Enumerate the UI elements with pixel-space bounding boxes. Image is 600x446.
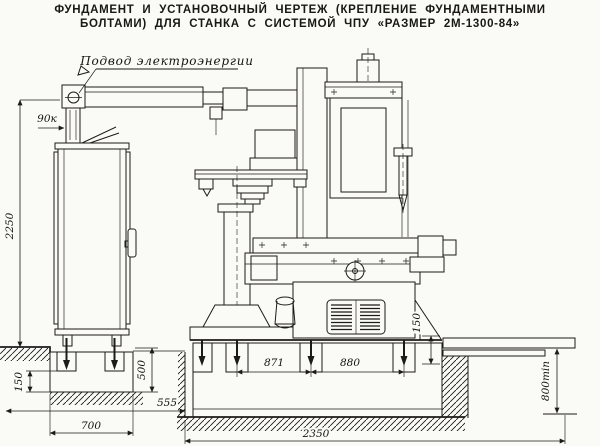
door-handle bbox=[128, 229, 136, 257]
cable-chute bbox=[82, 127, 119, 143]
dim-bolt-span-right: 880 bbox=[311, 357, 404, 372]
title-line-2: БОЛТАМИ) ДЛЯ СТАНКА С СИСТЕМОЙ ЧПУ «РАЗМ… bbox=[0, 17, 600, 31]
dim-power-offset: 90к bbox=[37, 113, 64, 128]
machine-column bbox=[297, 68, 327, 253]
head-top-plate bbox=[325, 82, 402, 98]
svg-text:2350: 2350 bbox=[302, 428, 330, 440]
svg-text:150: 150 bbox=[13, 372, 25, 392]
slab-ledge bbox=[443, 350, 545, 356]
table-plate bbox=[195, 170, 307, 179]
svg-text:700: 700 bbox=[81, 420, 101, 432]
anchor-bolt-cab-1 bbox=[63, 338, 70, 370]
arm-beam bbox=[85, 87, 203, 107]
arm-block bbox=[223, 88, 247, 110]
trench-wall-hatch bbox=[442, 356, 468, 418]
spindle-head bbox=[325, 48, 412, 237]
base-pedestal bbox=[203, 305, 270, 327]
table-drive-box bbox=[255, 130, 295, 158]
dim-trench-depth: 800min bbox=[540, 349, 557, 413]
power-supply-label: Подвод электроэнергии bbox=[79, 54, 254, 68]
svg-text:90к: 90к bbox=[37, 113, 57, 125]
table-drive-base bbox=[250, 158, 297, 170]
table-clamp-left bbox=[199, 179, 213, 189]
ground-and-foundation bbox=[0, 338, 577, 431]
cross-slide bbox=[245, 236, 456, 284]
knee bbox=[245, 253, 420, 284]
arm-post bbox=[66, 108, 80, 143]
limit-switch bbox=[210, 107, 222, 119]
ground-hatch-under-left-block bbox=[50, 392, 143, 405]
svg-text:500: 500 bbox=[136, 360, 148, 380]
machine bbox=[54, 48, 456, 346]
foundation-block-left bbox=[50, 352, 133, 392]
pit-wall-hatch-left bbox=[178, 352, 185, 418]
electrical-cabinet bbox=[54, 127, 136, 346]
dim-left-block-depth: 500 bbox=[133, 348, 158, 392]
lubricator bbox=[275, 297, 295, 328]
base-body bbox=[293, 282, 415, 338]
svg-text:150: 150 bbox=[411, 313, 423, 333]
svg-text:800min: 800min bbox=[540, 361, 552, 401]
bolt-centerlines bbox=[237, 362, 404, 377]
floor-slab-right bbox=[443, 338, 575, 348]
dim-overall-height: 2250 bbox=[4, 100, 60, 347]
machine-drawing-canvas: Подвод электроэнергии 2250 90к 150 bbox=[0, 0, 600, 446]
svg-text:871: 871 bbox=[264, 357, 284, 369]
arm-end-block bbox=[62, 85, 85, 108]
arm-extension bbox=[247, 90, 297, 106]
svg-text:880: 880 bbox=[340, 357, 360, 369]
foundation-installation-drawing: ФУНДАМЕНТ И УСТАНОВОЧНЫЙ ЧЕРТЕЖ (КРЕПЛЕН… bbox=[0, 0, 600, 446]
arm-coupling bbox=[203, 92, 223, 104]
table-clamp-right bbox=[294, 179, 306, 187]
cross-rail bbox=[253, 238, 420, 253]
svg-text:2250: 2250 bbox=[4, 212, 16, 240]
cabinet-foot-2 bbox=[112, 335, 121, 346]
pedestal-cap bbox=[218, 204, 253, 212]
ground-hatch-left bbox=[0, 348, 50, 361]
title-block: ФУНДАМЕНТ И УСТАНОВОЧНЫЙ ЧЕРТЕЖ (КРЕПЛЕН… bbox=[0, 3, 600, 31]
title-line-1: ФУНДАМЕНТ И УСТАНОВОЧНЫЙ ЧЕРТЕЖ (КРЕПЛЕН… bbox=[0, 3, 600, 17]
svg-text:555: 555 bbox=[157, 397, 177, 409]
